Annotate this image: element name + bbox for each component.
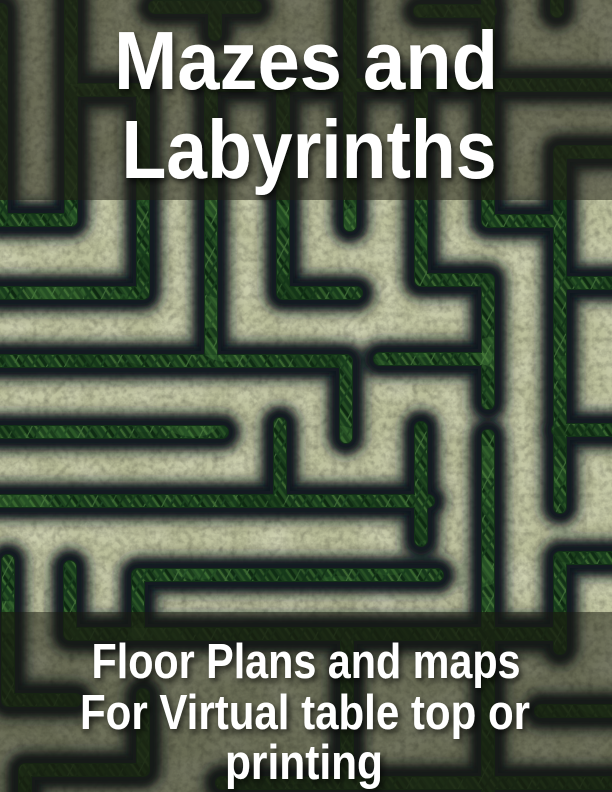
- svg-text:Mazes and: Mazes and: [114, 14, 498, 107]
- svg-text:Labyrinths: Labyrinths: [122, 103, 497, 196]
- svg-text:Floor Plans and maps: Floor Plans and maps: [92, 635, 521, 689]
- svg-text:printing: printing: [225, 736, 383, 790]
- svg-text:For Virtual table top or: For Virtual table top or: [80, 686, 530, 740]
